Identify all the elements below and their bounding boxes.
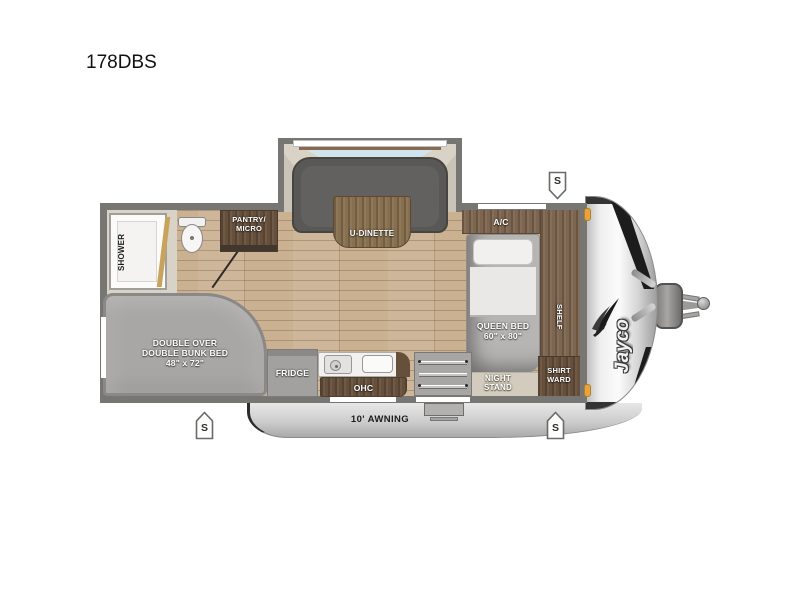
dinette-table: U-DINETTE [333,196,411,248]
queen-bed-label: QUEEN BED 60" x 80" [467,321,539,341]
step-tread [419,373,467,377]
dinette-label: U-DINETTE [334,229,410,238]
model-number: 178DBS [86,52,157,74]
shirt-wardrobe-label-line1: SHIRT [547,366,571,375]
fridge-label: FRIDGE [268,368,317,378]
bunk-bed-label: DOUBLE OVER DOUBLE BUNK BED 48" x 72" [106,338,264,368]
bunk-label-line2: DOUBLE BUNK BED [142,348,228,358]
rear-wall-window [101,317,106,378]
queen-bed: QUEEN BED 60" x 80" [466,234,540,374]
exterior-step-lip [430,417,458,421]
front-cap: Jayco [585,196,658,410]
ohc-label: OHC [321,383,406,393]
ac-cabinet: A/C [462,210,540,234]
night-stand-label-line1: NIGHT [485,374,511,383]
speaker-marker: S [195,411,214,440]
fridge-top-edge [268,350,317,356]
toilet-drain [190,236,194,240]
sink-icon [362,355,393,373]
bunk-bed: DOUBLE OVER DOUBLE BUNK BED 48" x 72" [103,293,267,396]
microwave-shadow [221,245,277,251]
cap-chevron-graphic [630,302,656,323]
speaker-marker: S [546,411,565,440]
jayco-logo: Jayco [612,245,634,373]
queen-bed-label-line1: QUEEN BED [477,321,529,331]
shower-label: SHOWER [117,223,126,281]
burner-center [335,365,338,368]
marker-light-icon [584,208,591,221]
step-bolt [465,384,468,387]
speaker-marker-letter: S [548,175,567,187]
speaker-marker: S [548,171,567,200]
bed-pillow [473,239,533,265]
slide-window-glass [303,150,437,157]
bunk-label-line1: DOUBLE OVER [153,338,218,348]
ac-label: A/C [462,217,540,227]
entry-steps [414,352,472,396]
pantry-label: PANTRY/ MICRO [221,216,277,234]
pantry-cabinet: PANTRY/ MICRO [220,210,278,252]
ohc-cabinet: OHC [320,377,407,397]
pantry-label-line2: MICRO [236,224,262,233]
step-bolt [418,360,421,363]
step-tread [419,361,467,365]
propane-tank-cover [654,283,683,329]
bedroom-window [478,204,546,209]
speaker-marker-letter: S [546,422,565,434]
shelf-label: SHELF [554,288,563,346]
entry-door-opening [416,397,470,402]
stove-icon [324,355,352,374]
kitchen-window [330,397,396,402]
step-bolt [465,360,468,363]
marker-light-icon [584,384,591,397]
pantry-label-line1: PANTRY/ [232,215,265,224]
night-stand-label-line2: STAND [484,383,512,392]
slide-window [293,140,447,147]
shirt-wardrobe-label: SHIRT WARD [538,367,580,385]
hitch-ball-icon [697,297,710,310]
step-tread [419,385,467,389]
bunk-size: 48" x 72" [166,358,204,368]
fridge: FRIDGE [267,349,318,397]
shirt-wardrobe-label-line2: WARD [547,375,571,384]
queen-bed-size: 60" x 80" [484,331,522,341]
slide-window-frame [299,147,441,150]
speaker-marker-letter: S [195,422,214,434]
shirt-wardrobe: SHIRT WARD [538,356,580,396]
shelf-cabinet: SHELF [540,210,580,356]
floorplan-image: 178DBS 10' AWNING Jayco U-DINETTE [0,0,800,600]
bed-blanket [470,267,536,317]
exterior-step [424,403,464,416]
step-bolt [418,384,421,387]
